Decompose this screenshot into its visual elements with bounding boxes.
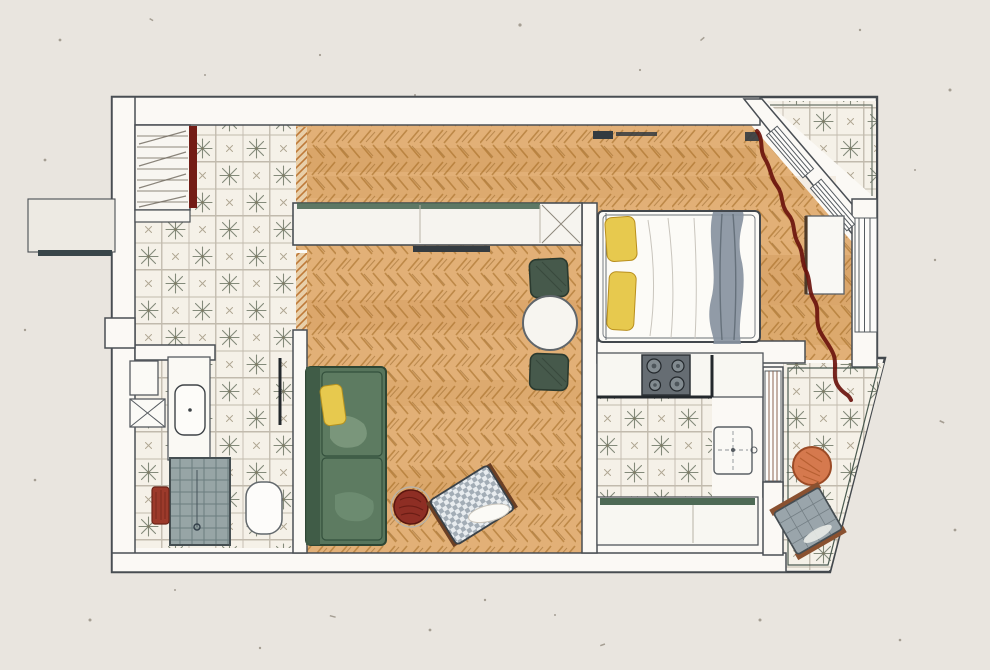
dining-stool-north — [529, 258, 569, 298]
exterior-landing — [28, 199, 115, 252]
vanity-sink — [168, 357, 210, 460]
dining-table — [523, 296, 577, 350]
living-bedroom-partition — [582, 203, 597, 553]
kitchen-tile-floor — [597, 395, 712, 497]
sofa — [306, 367, 386, 545]
bathroom-living-wall — [293, 330, 307, 553]
bed-gray-throw — [709, 212, 743, 344]
lower-counter-green-edge — [600, 498, 755, 505]
stove — [642, 355, 690, 395]
entry-wardrobe — [135, 125, 197, 222]
dining-stool-south — [529, 353, 568, 390]
floor-plan-sketch — [0, 0, 990, 670]
north-wall — [112, 97, 760, 125]
wardrobe-base-shelf — [135, 210, 190, 222]
double-bed — [598, 211, 760, 344]
closet-green-edge — [297, 203, 540, 209]
corridor-threshold — [296, 127, 307, 203]
toilet — [246, 482, 282, 534]
entry-hall-tile-floor — [188, 125, 296, 222]
closet-door-track — [413, 246, 490, 252]
corridor-closet — [293, 203, 582, 252]
shower-tray — [170, 458, 230, 545]
bedroom-east-window — [855, 218, 877, 332]
entrance-threshold-line — [38, 250, 112, 256]
bedroom-console — [806, 216, 844, 294]
south-wall — [112, 553, 786, 572]
kitchen-island — [714, 427, 757, 474]
balcony-table — [793, 447, 831, 485]
red-pouf — [391, 487, 431, 527]
service-shaft — [130, 399, 165, 427]
kitchen-lower-counter — [597, 497, 758, 545]
wardrobe-sliding-door — [189, 126, 197, 208]
washing-machine — [130, 361, 158, 395]
west-wall-pier — [105, 318, 135, 348]
